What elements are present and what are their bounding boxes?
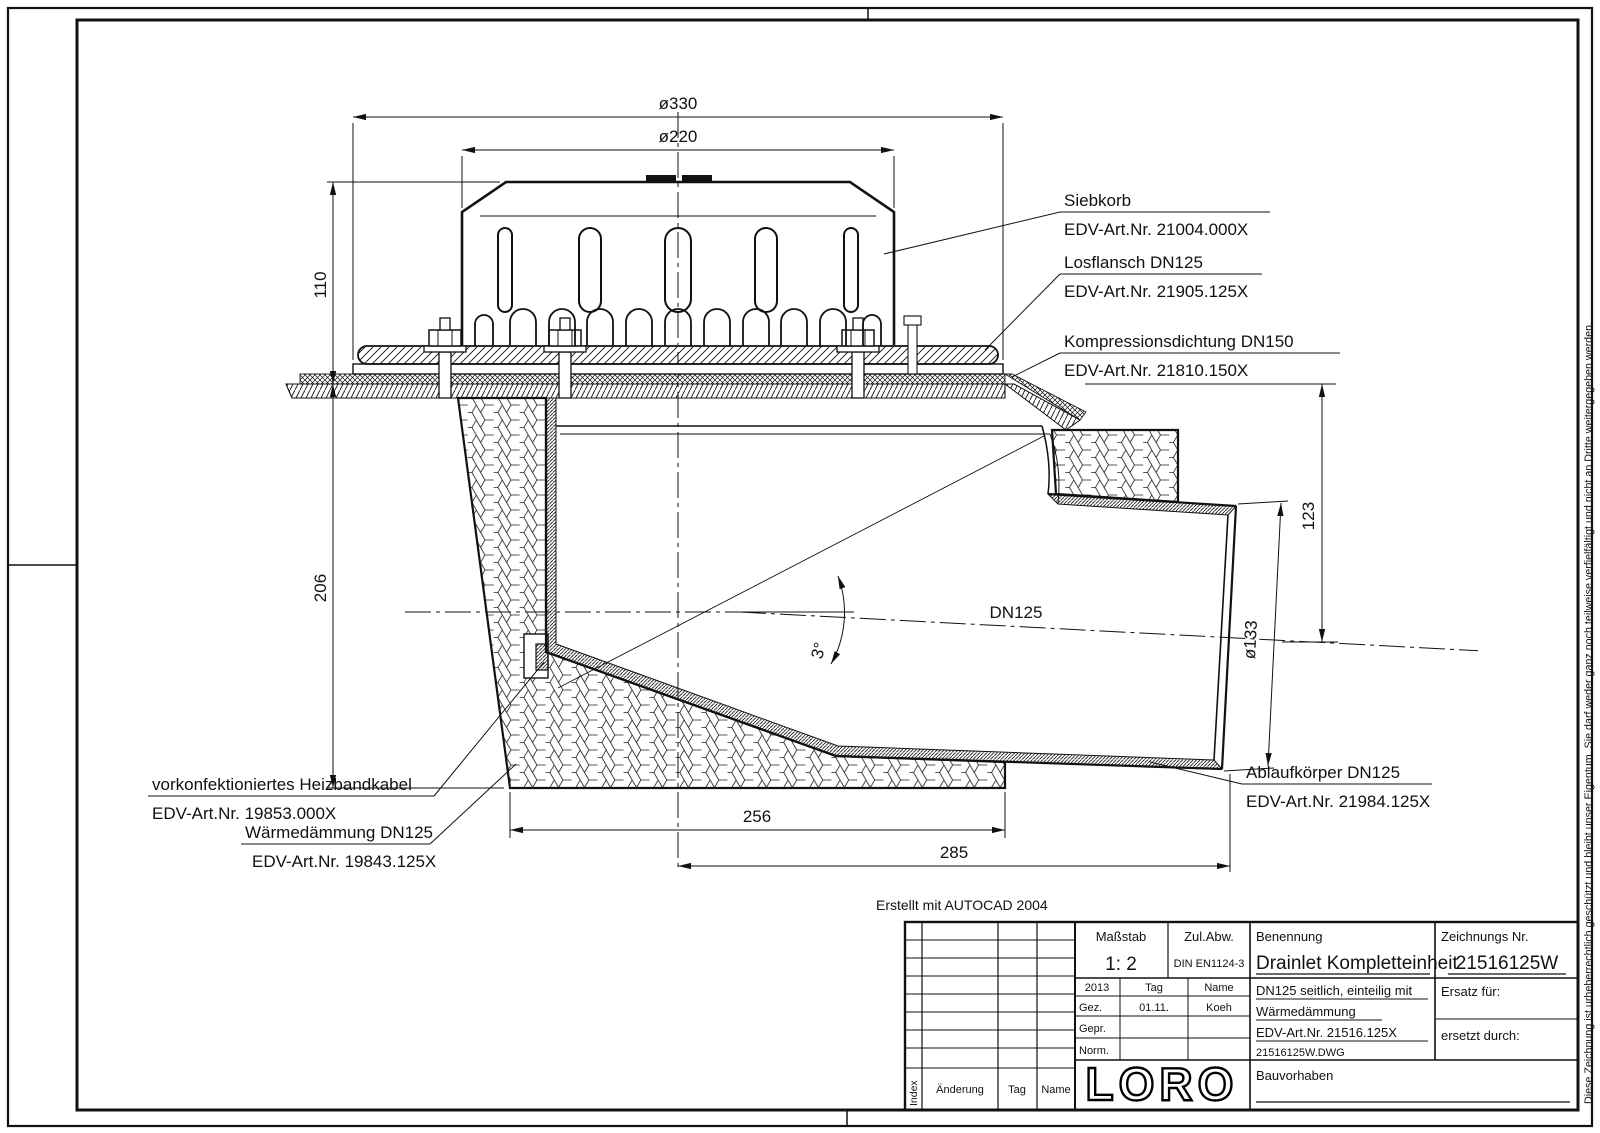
benennung-value: Drainlet Kompletteinheit — [1256, 953, 1458, 974]
autocad-note: Erstellt mit AUTOCAD 2004 — [876, 897, 1048, 913]
loro-logo: LORO — [1086, 1058, 1239, 1110]
part-edv: EDV-Art.Nr. 21905.125X — [1064, 282, 1248, 301]
benennung-label: Benennung — [1256, 929, 1323, 944]
desc-line4: 21516125W.DWG — [1256, 1047, 1345, 1059]
tag-header: Tag — [1145, 982, 1163, 994]
ersatz-label: Ersatz für: — [1441, 984, 1500, 999]
dim-123: 123 — [1299, 502, 1318, 530]
dim-256: 256 — [743, 807, 771, 826]
label-losflansch: Losflansch DN125 EDV-Art.Nr. 21905.125X — [1064, 253, 1248, 301]
label-ablaufkoerper: Ablaufkörper DN125 EDV-Art.Nr. 21984.125… — [1246, 763, 1430, 811]
zulabw-value: DIN EN1124-3 — [1174, 958, 1245, 970]
label-kompressionsdichtung: Kompressionsdichtung DN150 EDV-Art.Nr. 2… — [1064, 332, 1294, 380]
ersetzt-label: ersetzt durch: — [1441, 1028, 1520, 1043]
copyright-vertical-text: Diese Zeichnung ist urheberrechtlich ges… — [1583, 322, 1595, 1104]
part-edv: EDV-Art.Nr. 21004.000X — [1064, 220, 1248, 239]
dim-220: ø220 — [659, 127, 698, 146]
drawing-sheet: 3° DN125 ø330 ø220 110 — [0, 0, 1600, 1133]
dim-133: ø133 — [1240, 620, 1261, 660]
gez-name: Koeh — [1206, 1002, 1232, 1014]
dim-206: 206 — [311, 574, 330, 602]
bauvorhaben-label: Bauvorhaben — [1256, 1068, 1333, 1083]
desc-line2: Wärmedämmung — [1256, 1004, 1356, 1019]
rev-tag-label: Tag — [1008, 1084, 1026, 1096]
label-siebkorb: Siebkorb EDV-Art.Nr. 21004.000X — [1064, 191, 1248, 239]
part-edv: EDV-Art.Nr. 21810.150X — [1064, 361, 1248, 380]
part-edv: EDV-Art.Nr. 19843.125X — [252, 852, 436, 871]
dim-330: ø330 — [659, 94, 698, 113]
norm-label: Norm. — [1079, 1045, 1109, 1057]
rev-name-label: Name — [1041, 1084, 1070, 1096]
masstab-value: 1: 2 — [1105, 954, 1137, 975]
basket-handle-tab — [646, 175, 676, 183]
part-name: vorkonfektioniertes Heizbandkabel — [152, 775, 412, 794]
gez-label: Gez. — [1079, 1002, 1102, 1014]
name-header: Name — [1204, 982, 1233, 994]
part-edv: EDV-Art.Nr. 21984.125X — [1246, 792, 1430, 811]
title-block: Maßstab 1: 2 Zul.Abw. DIN EN1124-3 Benen… — [905, 922, 1578, 1110]
angle-dimension: 3° — [807, 576, 844, 664]
label-heizbandkabel: vorkonfektioniertes Heizbandkabel EDV-Ar… — [152, 775, 412, 823]
roof-layers — [286, 346, 1086, 430]
label-waermedaemmung: Wärmedämmung DN125 EDV-Art.Nr. 19843.125… — [245, 823, 436, 871]
gepr-label: Gepr. — [1079, 1023, 1106, 1035]
rev-index-label: Index — [908, 1080, 920, 1106]
desc-line1: DN125 seitlich, einteilig mit — [1256, 983, 1412, 998]
rev-aenderung-label: Änderung — [936, 1084, 984, 1096]
cad-canvas: 3° DN125 ø330 ø220 110 — [0, 0, 1600, 1133]
part-name: Wärmedämmung DN125 — [245, 823, 433, 842]
desc-line3: EDV-Art.Nr. 21516.125X — [1256, 1025, 1397, 1040]
zeichnung-value: 21516125W — [1456, 953, 1559, 974]
roof-membrane — [286, 384, 1005, 398]
part-name: Kompressionsdichtung DN150 — [1064, 332, 1294, 351]
part-name: Losflansch DN125 — [1064, 253, 1203, 272]
dim-110: 110 — [311, 271, 330, 298]
hopper-elevation-line — [558, 436, 1044, 688]
year: 2013 — [1085, 982, 1109, 994]
part-name: Siebkorb — [1064, 191, 1131, 210]
pipe-size-label: DN125 — [990, 603, 1043, 622]
dim-285: 285 — [940, 843, 968, 862]
insulation-waermedaemmung — [458, 398, 1178, 788]
masstab-label: Maßstab — [1096, 929, 1147, 944]
zeichnung-label: Zeichnungs Nr. — [1441, 929, 1528, 944]
compression-seal — [300, 374, 1005, 384]
gez-tag: 01.11. — [1139, 1002, 1169, 1014]
part-edv: EDV-Art.Nr. 19853.000X — [152, 804, 336, 823]
angle-value: 3° — [807, 640, 830, 661]
part-name: Ablaufkörper DN125 — [1246, 763, 1400, 782]
basket-handle-tab — [682, 175, 712, 183]
zulabw-label: Zul.Abw. — [1184, 929, 1234, 944]
